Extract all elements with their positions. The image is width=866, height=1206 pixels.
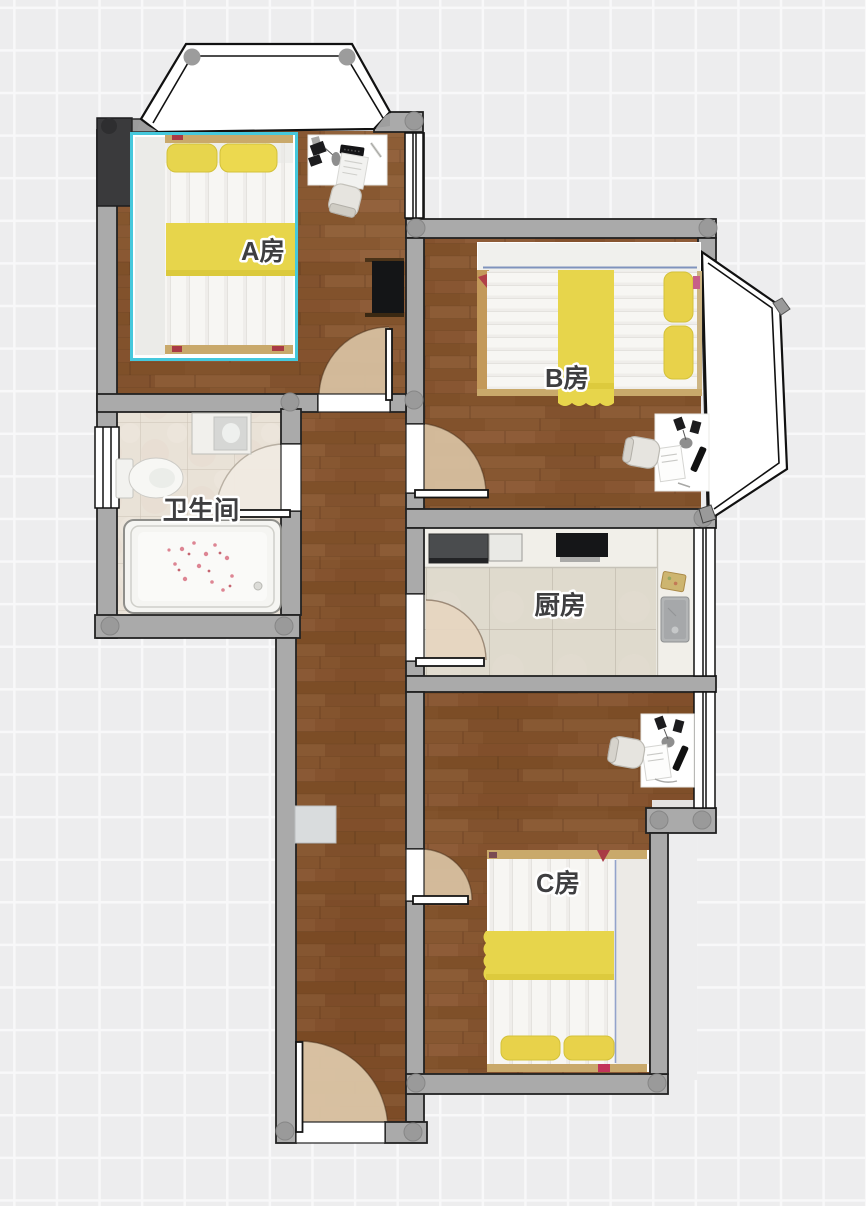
svg-text:B房: B房 <box>545 364 589 393</box>
svg-text:厨房: 厨房 <box>534 591 585 620</box>
svg-text:C房: C房 <box>536 869 580 898</box>
svg-text:A房: A房 <box>241 237 285 266</box>
svg-text:卫生间: 卫生间 <box>163 497 240 525</box>
